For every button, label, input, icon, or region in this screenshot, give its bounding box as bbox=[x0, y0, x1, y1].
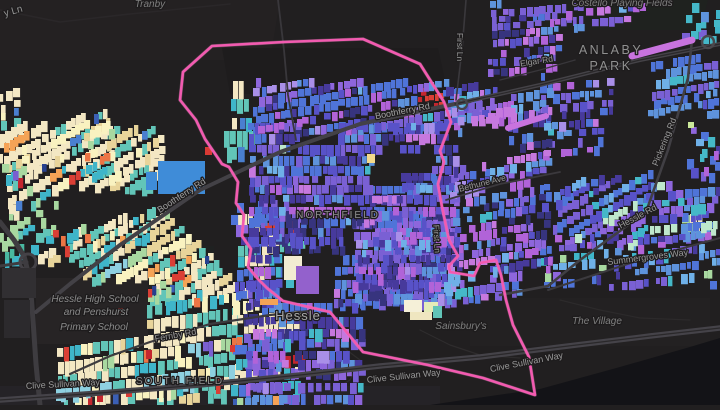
svg-text:Costello Playing Fields: Costello Playing Fields bbox=[571, 0, 672, 9]
svg-text:Hessle High School: Hessle High School bbox=[51, 294, 139, 305]
svg-text:The Village: The Village bbox=[572, 316, 622, 327]
svg-text:and Penshurst: and Penshurst bbox=[64, 307, 130, 318]
svg-text:Primary School: Primary School bbox=[60, 322, 129, 333]
svg-text:NORTHFIELD: NORTHFIELD bbox=[296, 210, 380, 221]
svg-text:SOUTH FIELD: SOUTH FIELD bbox=[136, 376, 224, 387]
svg-text:Sainsbury's: Sainsbury's bbox=[435, 321, 486, 332]
svg-text:First Ln: First Ln bbox=[431, 224, 442, 253]
svg-text:PARK: PARK bbox=[589, 59, 632, 73]
svg-text:First Ln: First Ln bbox=[455, 33, 465, 62]
svg-text:Tranby: Tranby bbox=[135, 0, 166, 10]
svg-text:ANLABY: ANLABY bbox=[579, 43, 643, 57]
svg-text:Hessle: Hessle bbox=[275, 308, 321, 323]
